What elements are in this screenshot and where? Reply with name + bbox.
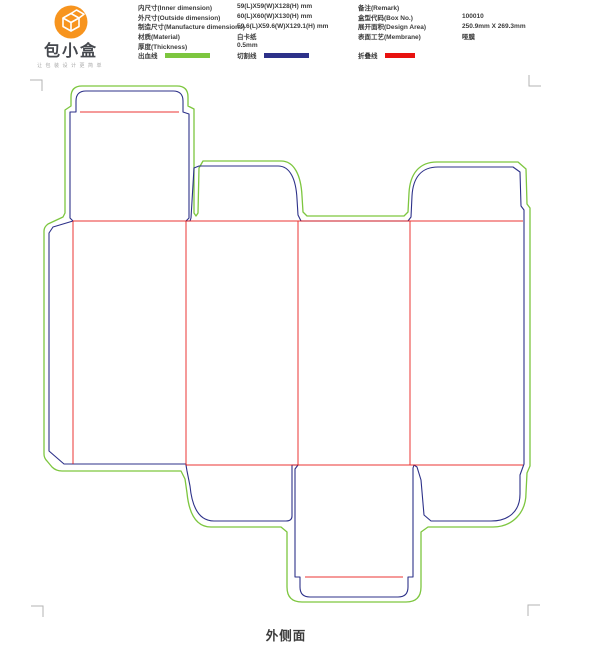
corner-mark-top-left: [30, 80, 42, 91]
corner-mark-bottom-right: [528, 605, 540, 616]
dieline-canvas: [0, 0, 602, 666]
view-label: 外侧面: [0, 625, 572, 644]
fold-lines: [73, 112, 523, 577]
bleed-outline: [44, 86, 530, 602]
corner-mark-top-right: [529, 75, 541, 86]
cut-outline: [49, 91, 524, 597]
corner-mark-bottom-left: [31, 606, 43, 617]
